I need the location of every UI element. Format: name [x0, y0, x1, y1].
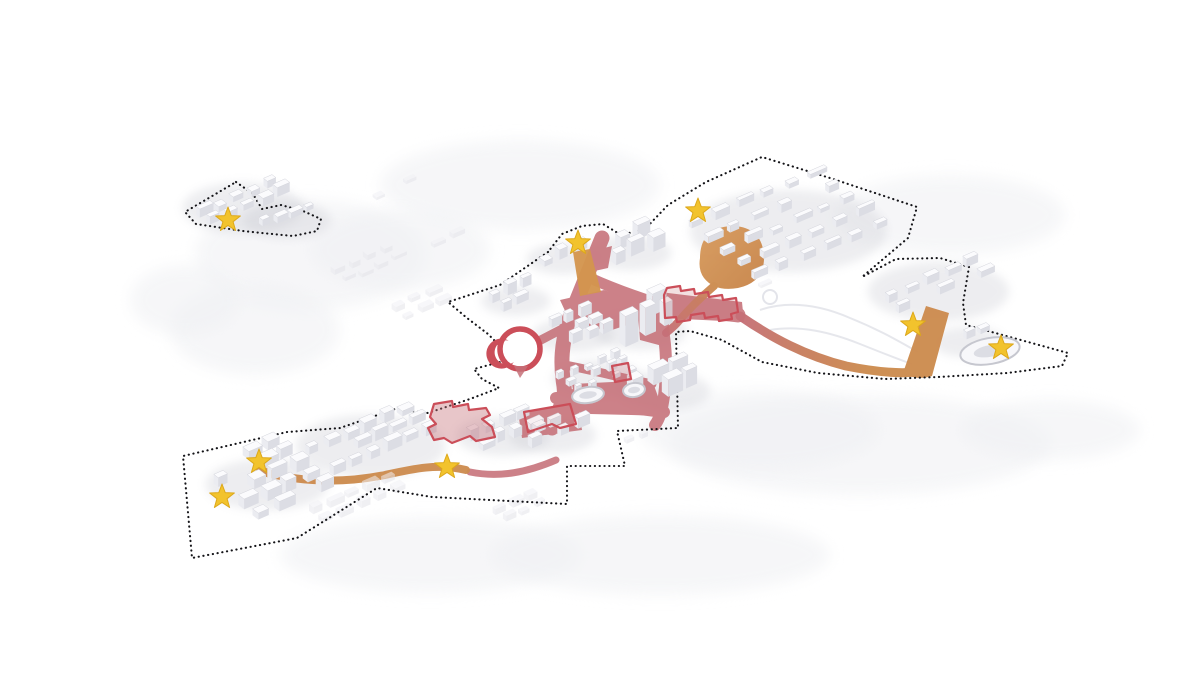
building [785, 177, 799, 189]
building [524, 488, 538, 502]
building [825, 179, 839, 193]
park-roundabout [763, 290, 777, 304]
building [402, 311, 413, 320]
terrain-blob [490, 515, 830, 595]
building [640, 299, 657, 336]
building [518, 506, 530, 516]
building [408, 292, 421, 303]
building [624, 434, 635, 444]
diagram-canvas [0, 0, 1200, 692]
axonometric-city-diagram [0, 0, 1200, 692]
circular-landmark-ring [500, 329, 540, 369]
highlighted-block-southwest [428, 401, 495, 443]
building [418, 299, 434, 313]
building [619, 306, 638, 347]
terrain-blob [130, 265, 240, 335]
building-front-face [645, 303, 656, 336]
circular-landmark-tail [514, 366, 528, 378]
building-front-face [625, 311, 638, 347]
building [758, 278, 772, 288]
highlighted-building-small [612, 363, 631, 382]
terrain-blob [960, 400, 1140, 460]
building [520, 272, 532, 288]
building [356, 493, 370, 508]
building-side-face [619, 312, 625, 347]
building [344, 486, 359, 498]
building-side-face [640, 304, 646, 337]
red-route-street [470, 460, 556, 474]
building [392, 300, 405, 313]
terrain-blob [310, 210, 490, 290]
cluster-shadow [243, 202, 331, 239]
orange-route-east-sweep [740, 316, 916, 373]
